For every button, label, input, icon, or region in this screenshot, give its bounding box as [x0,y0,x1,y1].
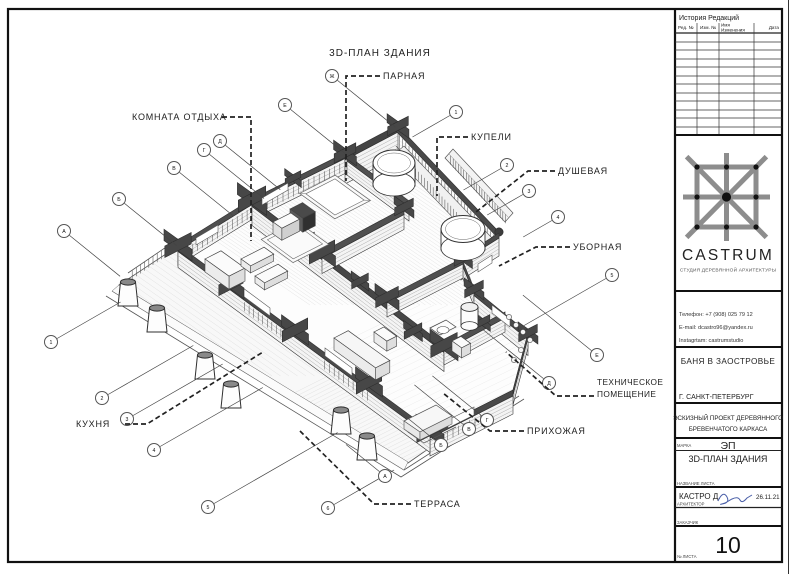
svg-text:Ж: Ж [330,74,335,80]
svg-text:ЭСКИЗНЫЙ ПРОЕКТ ДЕРЕВЯННОГО: ЭСКИЗНЫЙ ПРОЕКТ ДЕРЕВЯННОГО [673,414,783,422]
svg-text:№ ЛИСТА: № ЛИСТА [677,554,697,559]
svg-text:2: 2 [506,163,509,169]
svg-text:E-mail: dcastro96@yandex.ru: E-mail: dcastro96@yandex.ru [679,325,753,331]
svg-text:КАСТРО Д.: КАСТРО Д. [679,492,720,501]
svg-text:Телефон: +7 (908) 025 79 12: Телефон: +7 (908) 025 79 12 [679,312,753,318]
svg-text:Изменения: Изменения [721,28,745,33]
svg-text:Ред. №: Ред. № [678,25,694,30]
svg-text:4: 4 [153,448,156,454]
svg-text:Е: Е [283,103,287,109]
svg-text:Б: Б [117,197,121,203]
svg-text:2: 2 [101,396,104,402]
svg-text:26.11.21: 26.11.21 [756,494,780,501]
svg-text:Г: Г [486,418,489,424]
svg-text:БРЕВЕНЧАТОГО КАРКАСА: БРЕВЕНЧАТОГО КАРКАСА [689,426,768,433]
svg-text:НАЗВАНИЕ ЛИСТА: НАЗВАНИЕ ЛИСТА [677,481,715,486]
svg-text:3: 3 [528,189,531,195]
svg-text:БАНЯ В ЗАОСТРОВЬЕ: БАНЯ В ЗАОСТРОВЬЕ [681,357,776,366]
svg-text:А: А [383,474,387,480]
svg-text:А: А [62,229,66,235]
svg-text:Б: Б [439,443,443,449]
svg-text:6: 6 [327,506,330,512]
svg-text:ТЕХНИЧЕСКОЕ: ТЕХНИЧЕСКОЕ [597,377,663,387]
svg-text:КУХНЯ: КУХНЯ [76,419,110,429]
svg-text:ПОМЕЩЕНИЕ: ПОМЕЩЕНИЕ [597,389,656,399]
svg-text:АРХИТЕКТОР: АРХИТЕКТОР [677,502,705,507]
svg-text:Дата: Дата [769,25,780,30]
svg-text:Д: Д [547,381,551,387]
svg-text:МАРКА: МАРКА [677,443,692,448]
svg-text:ПРИХОЖАЯ: ПРИХОЖАЯ [527,426,586,436]
svg-text:История Редакций: История Редакций [679,14,739,22]
svg-text:Г. САНКТ-ПЕТЕРБУРГ: Г. САНКТ-ПЕТЕРБУРГ [679,394,754,401]
svg-text:1: 1 [455,110,458,116]
svg-text:5: 5 [207,505,210,511]
svg-text:Изм. №: Изм. № [700,25,716,30]
svg-text:Instagrtam: castrumstudio: Instagrtam: castrumstudio [679,338,743,344]
svg-text:10: 10 [715,532,741,558]
svg-text:1: 1 [50,340,53,346]
svg-text:3D-ПЛАН ЗДАНИЯ: 3D-ПЛАН ЗДАНИЯ [689,454,768,464]
svg-text:Е: Е [595,353,599,359]
svg-text:ПАРНАЯ: ПАРНАЯ [383,71,425,81]
svg-text:УБОРНАЯ: УБОРНАЯ [573,242,622,252]
svg-text:В: В [467,427,471,433]
svg-text:5: 5 [611,273,614,279]
svg-text:3: 3 [126,417,129,423]
svg-text:В: В [172,166,176,172]
svg-text:3D-ПЛАН ЗДАНИЯ: 3D-ПЛАН ЗДАНИЯ [329,48,431,59]
svg-text:Д: Д [218,139,222,145]
svg-text:КУПЕЛИ: КУПЕЛИ [471,132,512,142]
svg-text:CASTRUM: CASTRUM [682,247,774,264]
svg-text:ДУШЕВАЯ: ДУШЕВАЯ [558,166,608,176]
svg-text:ЗАКАЗЧИК: ЗАКАЗЧИК [677,520,699,525]
svg-text:ТЕРРАСА: ТЕРРАСА [414,499,461,509]
svg-text:Г: Г [203,148,206,154]
svg-text:КОМНАТА ОТДЫХА: КОМНАТА ОТДЫХА [132,112,227,122]
svg-text:4: 4 [557,215,560,221]
